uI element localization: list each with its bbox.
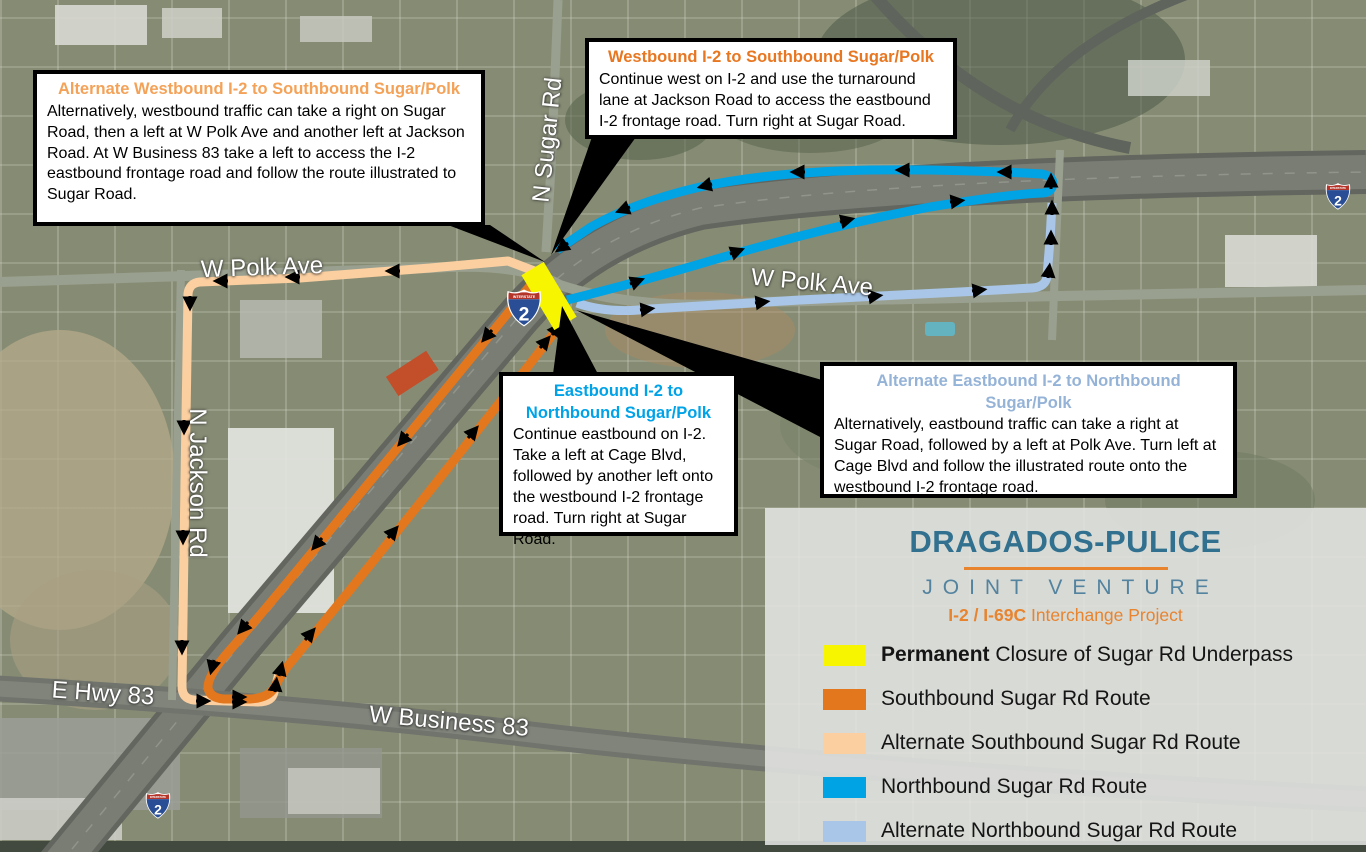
alt-southbound-swatch bbox=[823, 733, 866, 754]
leader-alt-westbound bbox=[448, 225, 545, 262]
callout-title: Eastbound I-2 to Northbound Sugar/Polk bbox=[513, 381, 724, 424]
project-title-rest: Interchange Project bbox=[1026, 605, 1183, 625]
brand-divider bbox=[964, 567, 1168, 570]
callout-body: Alternatively, eastbound traffic can tak… bbox=[834, 415, 1223, 499]
legend-item-closure: Permanent Closure of Sugar Rd Underpass bbox=[823, 644, 1366, 666]
southbound-swatch bbox=[823, 689, 866, 710]
callout-eastbound: Eastbound I-2 to Northbound Sugar/Polk C… bbox=[499, 372, 738, 536]
brand-block: DRAGADOS-PULICE JOINT VENTURE I-2 / I-69… bbox=[765, 524, 1366, 626]
callout-westbound: Westbound I-2 to Southbound Sugar/Polk C… bbox=[585, 38, 957, 139]
brand-name: DRAGADOS-PULICE bbox=[765, 524, 1366, 560]
i2-shield-southwest: INTERSTATE 2 bbox=[146, 792, 171, 819]
callout-title: Alternate Westbound I-2 to Southbound Su… bbox=[47, 79, 471, 101]
project-title: I-2 / I-69C Interchange Project bbox=[765, 605, 1366, 626]
closure-swatch bbox=[823, 645, 866, 666]
detour-map: INTERSTATE 2 INTERSTATE 2 INTERSTATE 2 bbox=[0, 0, 1366, 852]
road-label-jackson-rd: N Jackson Rd bbox=[183, 408, 211, 557]
callout-title: Alternate Eastbound I-2 to Northbound Su… bbox=[834, 371, 1223, 414]
road-label-polk-ave-west: W Polk Ave bbox=[200, 252, 323, 284]
callout-body: Alternatively, westbound traffic can tak… bbox=[47, 102, 471, 207]
callout-body: Continue west on I-2 and use the turnaro… bbox=[599, 70, 943, 133]
svg-text:2: 2 bbox=[154, 801, 162, 817]
callout-body: Continue eastbound on I-2. Take a left a… bbox=[513, 425, 724, 551]
legend-item-northbound: Northbound Sugar Rd Route bbox=[823, 776, 1366, 798]
svg-text:INTERSTATE: INTERSTATE bbox=[513, 295, 536, 299]
northbound-swatch bbox=[823, 777, 866, 798]
brand-subtitle: JOINT VENTURE bbox=[765, 576, 1366, 600]
legend-item-alt-southbound: Alternate Southbound Sugar Rd Route bbox=[823, 732, 1366, 754]
legend-panel: DRAGADOS-PULICE JOINT VENTURE I-2 / I-69… bbox=[765, 508, 1366, 845]
svg-text:INTERSTATE: INTERSTATE bbox=[150, 795, 166, 799]
legend-item-alt-northbound: Alternate Northbound Sugar Rd Route bbox=[823, 820, 1366, 842]
svg-text:INTERSTATE: INTERSTATE bbox=[1330, 186, 1346, 190]
callout-title: Westbound I-2 to Southbound Sugar/Polk bbox=[599, 47, 943, 69]
svg-text:2: 2 bbox=[519, 304, 530, 325]
svg-text:2: 2 bbox=[1334, 192, 1342, 208]
project-title-bold: I-2 / I-69C bbox=[948, 605, 1026, 625]
alt-northbound-swatch bbox=[823, 821, 866, 842]
callout-alt-westbound: Alternate Westbound I-2 to Southbound Su… bbox=[33, 70, 485, 226]
i2-shield-east: INTERSTATE 2 bbox=[1326, 183, 1351, 210]
callout-alt-eastbound: Alternate Eastbound I-2 to Northbound Su… bbox=[820, 362, 1237, 498]
legend-rows: Permanent Closure of Sugar Rd Underpass … bbox=[765, 644, 1366, 842]
legend-item-southbound: Southbound Sugar Rd Route bbox=[823, 688, 1366, 710]
